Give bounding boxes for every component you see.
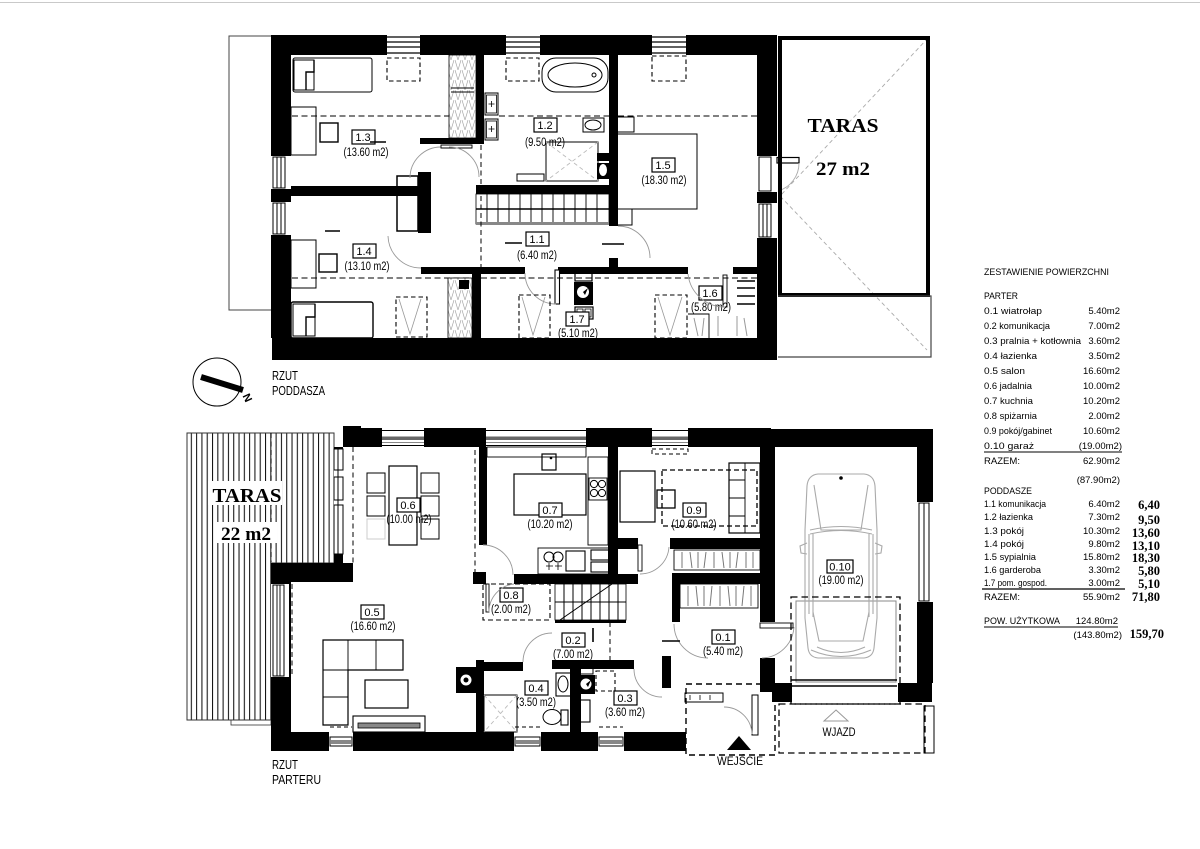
svg-text:0.5 salon: 0.5 salon <box>984 366 1025 377</box>
svg-text:PARTER: PARTER <box>984 291 1018 302</box>
svg-text:(16.60 m2): (16.60 m2) <box>351 621 396 633</box>
svg-text:0.1 wiatrołap: 0.1 wiatrołap <box>984 306 1042 317</box>
svg-text:10.60m2: 10.60m2 <box>1083 426 1120 437</box>
svg-text:RZUT: RZUT <box>272 369 298 383</box>
svg-text:PARTERU: PARTERU <box>272 773 321 787</box>
svg-text:0.3 pralnia + kotłownia: 0.3 pralnia + kotłownia <box>984 336 1082 347</box>
svg-text:10.20m2: 10.20m2 <box>1083 396 1120 407</box>
svg-text:POW. UŻYTKOWA: POW. UŻYTKOWA <box>984 616 1061 627</box>
svg-text:5,80: 5,80 <box>1138 564 1160 578</box>
svg-text:(10.00 m2): (10.00 m2) <box>387 514 432 526</box>
svg-text:6,40: 6,40 <box>1138 498 1160 512</box>
svg-text:PODDASZA: PODDASZA <box>272 384 326 398</box>
svg-text:(7.00 m2): (7.00 m2) <box>553 649 593 661</box>
svg-text:6.40m2: 6.40m2 <box>1088 499 1120 510</box>
svg-text:2.00m2: 2.00m2 <box>1088 411 1120 422</box>
svg-text:71,80: 71,80 <box>1132 590 1160 604</box>
svg-text:(3.50 m2): (3.50 m2) <box>516 697 556 709</box>
svg-text:(5.10 m2): (5.10 m2) <box>558 328 598 340</box>
svg-text:PODDASZE: PODDASZE <box>984 486 1032 497</box>
svg-text:9,50: 9,50 <box>1138 513 1160 527</box>
svg-text:10.30m2: 10.30m2 <box>1083 526 1120 537</box>
svg-text:16.60m2: 16.60m2 <box>1083 366 1120 377</box>
svg-text:1.6 garderoba: 1.6 garderoba <box>984 565 1042 576</box>
svg-text:1.6: 1.6 <box>702 288 717 300</box>
svg-text:(9.50 m2): (9.50 m2) <box>525 137 565 149</box>
svg-text:3.00m2: 3.00m2 <box>1088 578 1120 589</box>
svg-text:(19.00m2): (19.00m2) <box>1079 441 1122 452</box>
svg-text:0.3: 0.3 <box>617 693 632 705</box>
svg-text:0.2 komunikacja: 0.2 komunikacja <box>984 321 1051 332</box>
svg-text:0.6 jadalnia: 0.6 jadalnia <box>984 381 1033 392</box>
svg-text:0.9 pokój/gabinet: 0.9 pokój/gabinet <box>984 426 1052 437</box>
svg-text:18,30: 18,30 <box>1132 551 1160 565</box>
svg-text:1.1 komunikacja: 1.1 komunikacja <box>984 499 1047 510</box>
svg-text:1.2 łazienka: 1.2 łazienka <box>984 512 1034 523</box>
svg-text:RZUT: RZUT <box>272 758 298 772</box>
svg-text:3.30m2: 3.30m2 <box>1088 565 1120 576</box>
svg-text:0.4: 0.4 <box>528 683 543 695</box>
svg-text:62.90m2: 62.90m2 <box>1083 456 1120 467</box>
svg-text:(10.20 m2): (10.20 m2) <box>528 519 573 531</box>
svg-text:(13.10 m2): (13.10 m2) <box>345 261 390 273</box>
svg-text:3.60m2: 3.60m2 <box>1088 336 1120 347</box>
svg-text:(143.80m2): (143.80m2) <box>1073 630 1122 641</box>
svg-text:1.4: 1.4 <box>356 246 371 258</box>
svg-text:(6.40 m2): (6.40 m2) <box>517 250 557 262</box>
svg-text:1.4 pokój: 1.4 pokój <box>984 539 1024 550</box>
svg-text:22 m2: 22 m2 <box>221 524 271 545</box>
svg-text:3.50m2: 3.50m2 <box>1088 351 1120 362</box>
svg-text:15.80m2: 15.80m2 <box>1083 552 1120 563</box>
svg-text:0.9: 0.9 <box>686 505 701 517</box>
svg-text:0.6: 0.6 <box>400 500 415 512</box>
svg-text:1.3: 1.3 <box>355 132 370 144</box>
svg-text:1.7: 1.7 <box>569 314 584 326</box>
svg-text:(10.60 m2): (10.60 m2) <box>672 519 717 531</box>
svg-text:0.8 spiżarnia: 0.8 spiżarnia <box>984 411 1038 422</box>
svg-text:1.1: 1.1 <box>529 234 544 246</box>
svg-text:13,60: 13,60 <box>1132 526 1160 540</box>
svg-text:10.00m2: 10.00m2 <box>1083 381 1120 392</box>
svg-text:1.5: 1.5 <box>655 160 670 172</box>
svg-text:1.5 sypialnia: 1.5 sypialnia <box>984 552 1037 563</box>
svg-text:124.80m2: 124.80m2 <box>1076 616 1118 627</box>
svg-text:(13.60 m2): (13.60 m2) <box>344 147 389 159</box>
svg-text:0.2: 0.2 <box>565 635 580 647</box>
svg-text:(5.40 m2): (5.40 m2) <box>703 646 743 658</box>
svg-text:0.8: 0.8 <box>503 590 518 602</box>
svg-text:0.5: 0.5 <box>364 607 379 619</box>
svg-text:5,10: 5,10 <box>1138 577 1160 591</box>
svg-text:55.90m2: 55.90m2 <box>1083 592 1120 603</box>
svg-text:ZESTAWIENIE POWIERZCHNI: ZESTAWIENIE POWIERZCHNI <box>984 267 1109 278</box>
svg-text:(19.00 m2): (19.00 m2) <box>819 575 864 587</box>
svg-text:9.80m2: 9.80m2 <box>1088 539 1120 550</box>
svg-text:1.2: 1.2 <box>537 120 552 132</box>
svg-text:27 m2: 27 m2 <box>816 159 870 180</box>
svg-text:0.1: 0.1 <box>715 632 730 644</box>
svg-text:(5.80 m2): (5.80 m2) <box>691 302 731 314</box>
svg-text:159,70: 159,70 <box>1130 627 1164 641</box>
svg-text:(87.90m2): (87.90m2) <box>1077 475 1120 486</box>
svg-text:RAZEM:: RAZEM: <box>984 456 1020 467</box>
svg-text:0.4 łazienka: 0.4 łazienka <box>984 351 1038 362</box>
svg-text:TARAS: TARAS <box>808 115 879 137</box>
svg-text:7.00m2: 7.00m2 <box>1088 321 1120 332</box>
svg-text:1.7 pom. gospod.: 1.7 pom. gospod. <box>984 578 1047 589</box>
svg-text:RAZEM:: RAZEM: <box>984 592 1020 603</box>
svg-text:(18.30 m2): (18.30 m2) <box>642 175 687 187</box>
svg-text:TARAS: TARAS <box>213 485 282 507</box>
svg-text:(3.60 m2): (3.60 m2) <box>605 707 645 719</box>
svg-text:1.3 pokój: 1.3 pokój <box>984 526 1024 537</box>
svg-text:0.10 garaż: 0.10 garaż <box>984 441 1034 452</box>
svg-text:5.40m2: 5.40m2 <box>1088 306 1120 317</box>
svg-text:0.7: 0.7 <box>542 505 557 517</box>
svg-text:WJAZD: WJAZD <box>823 727 856 739</box>
svg-text:0.7 kuchnia: 0.7 kuchnia <box>984 396 1034 407</box>
svg-text:7.30m2: 7.30m2 <box>1088 512 1120 523</box>
svg-text:(2.00 m2): (2.00 m2) <box>491 604 531 616</box>
svg-text:0.10: 0.10 <box>829 562 850 574</box>
svg-text:WEJŚCIE: WEJŚCIE <box>717 755 763 768</box>
